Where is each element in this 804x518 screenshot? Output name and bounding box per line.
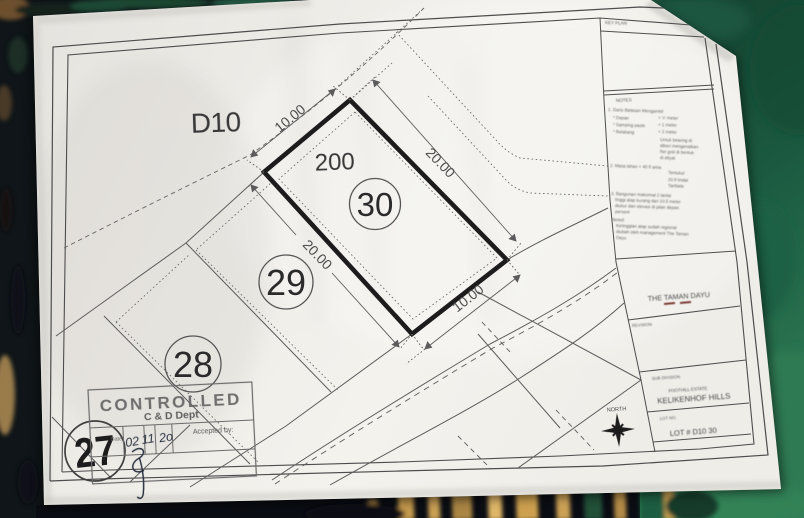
svg-text:* Depan: * Depan	[613, 115, 630, 121]
svg-text:20 ft lindai: 20 ft lindai	[668, 177, 688, 183]
svg-text:2o: 2o	[157, 429, 174, 445]
svg-text:KEY PLAN: KEY PLAN	[605, 20, 627, 26]
svg-text:28: 28	[173, 344, 213, 385]
svg-text:30: 30	[357, 186, 394, 223]
svg-text:* Belakang: * Belakang	[613, 129, 635, 135]
svg-text:29: 29	[266, 262, 306, 303]
svg-text:Tentukul: Tentukul	[668, 170, 685, 176]
svg-text:Dayu: Dayu	[616, 235, 627, 240]
svg-text:di atiyat: di atiyat	[660, 155, 676, 161]
svg-text:D10: D10	[190, 106, 241, 139]
svg-text:11: 11	[141, 431, 156, 447]
svg-text:persent: persent	[615, 209, 631, 215]
svg-text:= 'x' meter: = 'x' meter	[658, 115, 679, 121]
svg-text:Noted:: Noted:	[612, 217, 625, 222]
svg-text:Date: Date	[110, 436, 122, 443]
svg-text:NOTES: NOTES	[616, 97, 632, 103]
svg-text:= 1 meter: = 1 meter	[658, 122, 677, 128]
svg-text:= 3 meter: = 3 meter	[658, 129, 677, 135]
svg-text:27: 27	[72, 427, 118, 478]
svg-text:200: 200	[314, 148, 355, 176]
svg-text:02: 02	[124, 434, 140, 450]
svg-text:Tanbata: Tanbata	[668, 183, 684, 189]
